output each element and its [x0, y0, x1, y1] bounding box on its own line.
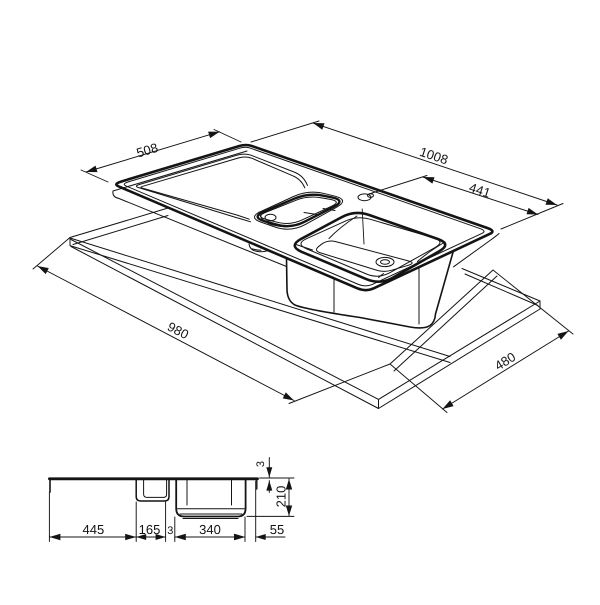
svg-text:3: 3: [167, 525, 173, 537]
svg-text:55: 55: [270, 522, 284, 537]
svg-text:165: 165: [139, 522, 161, 537]
svg-text:340: 340: [199, 522, 221, 537]
svg-text:445: 445: [83, 522, 105, 537]
svg-text:210: 210: [274, 486, 289, 508]
svg-text:3: 3: [255, 461, 267, 467]
